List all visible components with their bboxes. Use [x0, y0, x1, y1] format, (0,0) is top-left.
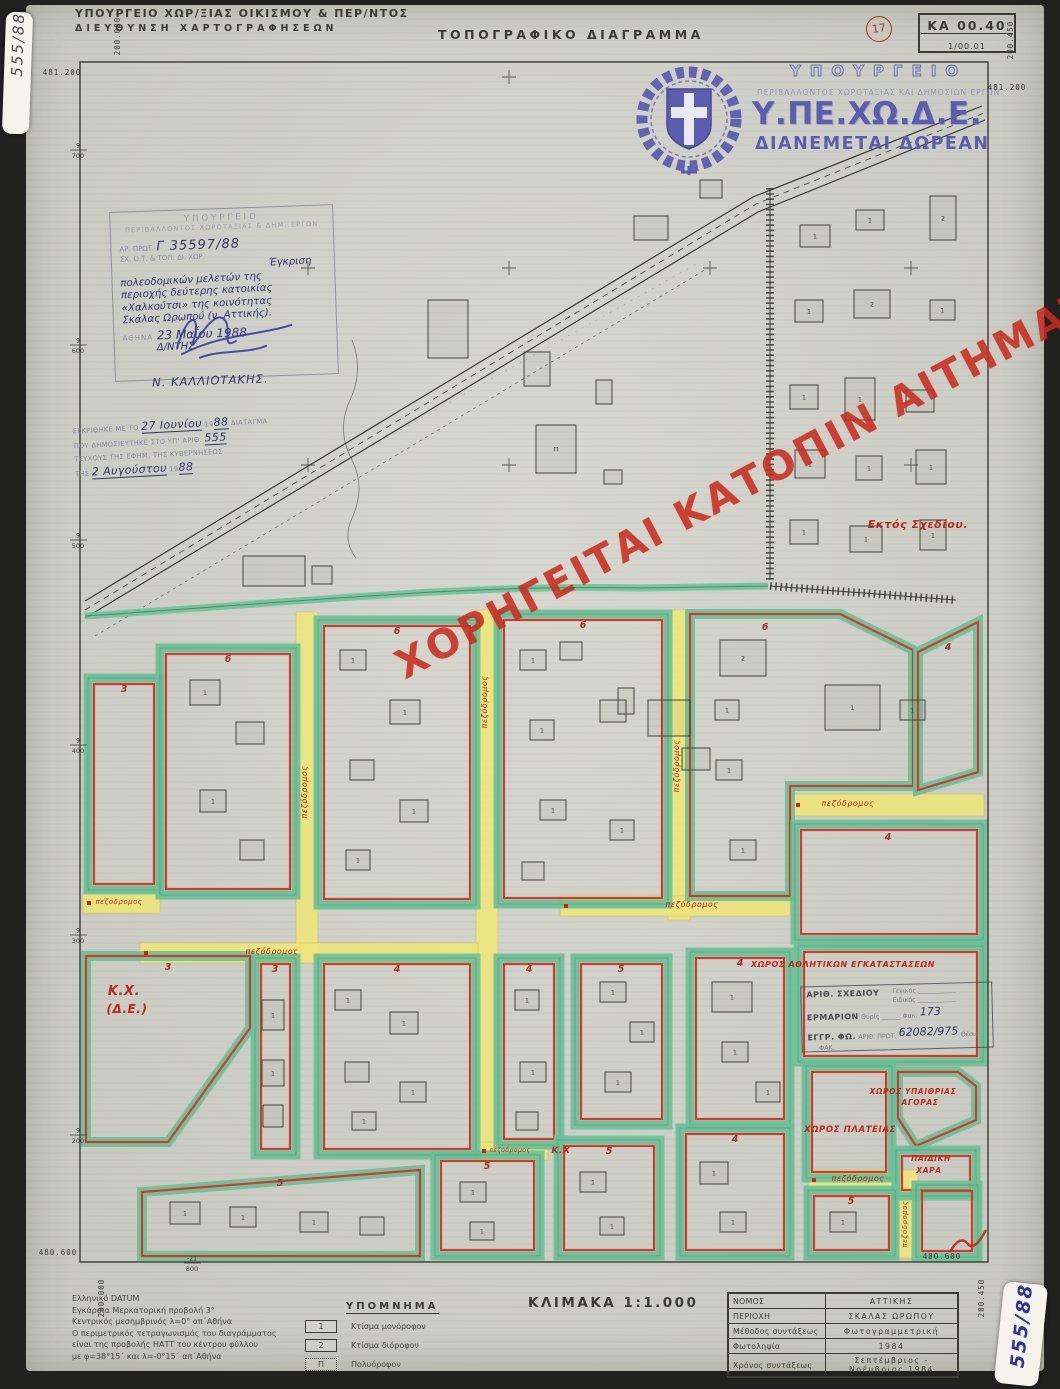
datum-line: είναι της προβολής ΗΑΤΤ του κέντρου φύλλ…	[72, 1339, 277, 1351]
document-label: ΕΓΓΡ. ΦΩ.	[807, 1032, 856, 1042]
table-row: ΝΟΜΟΣΑΤΤΙΚΗΣ	[728, 1293, 958, 1309]
place-label: ΑΘΗΝΑ	[122, 333, 153, 342]
sheet-code-sub: 1/00.01	[948, 42, 986, 51]
gazette-l4-year-prefix: 19	[169, 465, 179, 473]
table-row: Μέθοδος συντάξεωςΦωτογραμμετρική	[728, 1324, 958, 1339]
protocol-label: ΑΡ. ΠΡΩΤ.	[119, 244, 154, 253]
row-value: Σεπτέμβριος - Νοέμβριος 1984	[826, 1354, 959, 1378]
gazette-l4-label: ΤΗΣ	[75, 470, 90, 479]
hatch-label: Θυρίς ______	[861, 1013, 901, 1021]
file-number-sticker-bottom: 555/88	[994, 1281, 1048, 1387]
row-value: 1984	[826, 1339, 959, 1354]
logo-distributed-free: ΔΙΑΝΕΜΕΤΑΙ ΔΩΡΕΑΝ	[755, 134, 990, 154]
gazette-issue-number: 555	[204, 430, 227, 445]
ministry-emblem-icon	[628, 58, 750, 184]
protocol-number-value: 62082/975	[898, 1024, 958, 1039]
file-number: 555/88	[996, 1281, 1049, 1370]
row-label: ΝΟΜΟΣ	[728, 1293, 826, 1309]
logo-acronym: Υ.ΠΕ.ΧΩ.Δ.Ε.	[752, 96, 982, 132]
logo-ministry-word: ΥΠΟΥΡΓΕΙΟ	[790, 62, 967, 80]
director-signature	[161, 302, 313, 365]
datum-line: Ο περιμετρικός τετραγωνισμός του διαγράμ…	[72, 1328, 277, 1340]
legend-item-single-storey: 1Κτίσμα μονόροφον	[305, 1320, 426, 1333]
datum-line: Ελληνικό DATUM	[72, 1293, 277, 1305]
sheet-info-table: ΝΟΜΟΣΑΤΤΙΚΗΣ ΠΕΡΙΟΧΗΣΚΑΛΑΣ ΩΡΩΠΟΥ Μέθοδο…	[727, 1292, 959, 1378]
special-label: Ειδικός ____________	[892, 995, 955, 1004]
folder-label: Φακ.	[903, 1012, 918, 1019]
folder-number: 173	[920, 1005, 941, 1019]
legend-item-multi-storey: ΠΠολυόροφον	[305, 1358, 401, 1371]
legend-label-2: Κτίσμα διόροφον	[351, 1341, 419, 1350]
file-number-sticker-top: 555/88	[2, 12, 33, 135]
legend-heading: ΥΠΟΜΝΗΜΑ	[346, 1301, 439, 1314]
protocol-number-label: ΑΡΙΘ. ΠΡΩΤ.	[858, 1033, 896, 1041]
scanned-topographic-sheet: 366664434454355545πεζόδρομοςπεζόδρομοςπε…	[0, 0, 1060, 1389]
legend-symbol-1: 1	[305, 1320, 337, 1333]
gazette-publication-year: 88	[178, 460, 194, 475]
sheet-code-box: ΚΑ 00.40 1/00.01	[918, 13, 1016, 53]
gazette-decree-year: 88	[213, 415, 229, 430]
legend-symbol-2: 2	[305, 1339, 337, 1352]
row-label: Φωτοληψία	[728, 1339, 826, 1354]
table-row: Χρόνος συντάξεωςΣεπτέμβριος - Νοέμβριος …	[728, 1354, 958, 1378]
scale-label: ΚΛΙΜΑΚΑ 1:1.000	[528, 1295, 698, 1311]
gazette-l1-label: ΕΓΚΡΙΘΗΚΕ ΜΕ ΤΟ	[73, 424, 139, 435]
datum-line: με φ=38°15΄ και λ=-0°15΄ απ΄Αθήνα	[72, 1351, 277, 1363]
page-title: ΤΟΠΟΓΡΑΦΙΚΟ ΔΙΑΓΡΑΜΜΑ	[438, 27, 704, 42]
file-number: 555/88	[4, 12, 33, 78]
row-label: ΠΕΡΙΟΧΗ	[728, 1309, 826, 1324]
archive-stamp: ΑΡΙΘ. ΣΧΕΔΙΟΥ Γενικός ____________ Ειδικ…	[800, 981, 994, 1052]
datum-line: Εγκάρσια Μερκατορική προβολή 3°	[72, 1305, 277, 1317]
legend-label-pi: Πολυόροφον	[351, 1360, 401, 1369]
archive-row3: ΕΓΓΡ. ΦΩ. ΑΡΙΘ. ΠΡΩΤ. 62082/975 Θέσις __…	[807, 1026, 987, 1051]
row-value: Φωτογραμμετρική	[826, 1324, 959, 1339]
gazette-l1-suffix: ΔΙΑΤΑΓΜΑ	[231, 417, 268, 427]
ministry-name: ΥΠΟΥΡΓΕΙΟ ΧΩΡ/ΞΙΑΣ ΟΙΚΙΣΜΟΥ & ΠΕΡ/ΝΤΟΣ	[75, 7, 409, 20]
drawing-number-label: ΑΡΙΘ. ΣΧΕΔΙΟΥ	[806, 988, 879, 999]
approval-stamp: ΥΠΟΥΡΓΕΙΟ ΠΕΡΙΒΑΛΛΟΝΤΟΣ ΧΩΡΟΤΑΞΙΑΣ & ΔΗΜ…	[109, 204, 339, 382]
sheet-code: ΚΑ 00.40	[921, 17, 1012, 34]
gazette-stamp: ΕΓΚΡΙΘΗΚΕ ΜΕ ΤΟ 27 Ιουνίου 1988 ΔΙΑΤΑΓΜΑ…	[72, 411, 319, 490]
row-label: Μέθοδος συντάξεως	[728, 1324, 826, 1339]
legend-label-1: Κτίσμα μονόροφον	[351, 1322, 426, 1331]
cabinet-label: ΕΡΜΑΡΙΟΝ	[807, 1012, 859, 1022]
datum-line: Κεντρικός μεσημβρινός λ=0° απ΄Αθήνα	[72, 1316, 277, 1328]
gazette-publication-date: 2 Αυγούστου	[92, 462, 168, 480]
protocol-number: Γ 35597/88	[156, 236, 240, 254]
row-value: ΣΚΑΛΑΣ ΩΡΩΠΟΥ	[826, 1309, 959, 1324]
general-label: Γενικός ____________	[892, 986, 956, 995]
legend-item-two-storey: 2Κτίσμα διόροφον	[305, 1339, 419, 1352]
table-row: Φωτοληψία1984	[728, 1339, 958, 1354]
row-label: Χρόνος συντάξεως	[728, 1354, 826, 1378]
datum-notes: Ελληνικό DATUM Εγκάρσια Μερκατορική προβ…	[72, 1293, 277, 1363]
row-value: ΑΤΤΙΚΗΣ	[826, 1293, 959, 1309]
table-row: ΠΕΡΙΟΧΗΣΚΑΛΑΣ ΩΡΩΠΟΥ	[728, 1309, 958, 1324]
legend-symbol-pi: Π	[305, 1358, 337, 1371]
directorate-name: ΔΙΕΥΘΥΝΣΗ ΧΑΡΤΟΓΡΑΦΗΣΕΩΝ	[75, 23, 338, 34]
gazette-l1-year-prefix: 19	[204, 420, 214, 428]
